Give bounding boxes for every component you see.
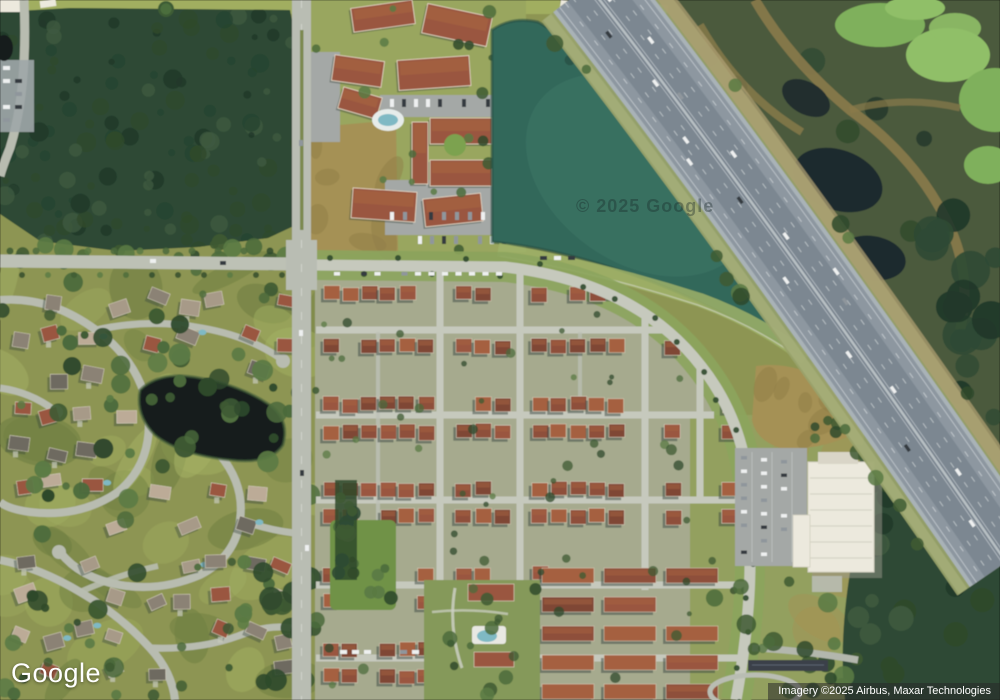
satellite-imagery <box>0 0 1000 700</box>
google-logo[interactable]: Google <box>11 658 101 689</box>
imagery-attribution: Imagery ©2025 Airbus, Maxar Technologies <box>768 683 1000 700</box>
forest-northwest <box>0 8 304 271</box>
map-watermark: © 2025 Google <box>576 196 714 217</box>
map-viewport[interactable]: © 2025 Google Google Imagery ©2025 Airbu… <box>0 0 1000 700</box>
